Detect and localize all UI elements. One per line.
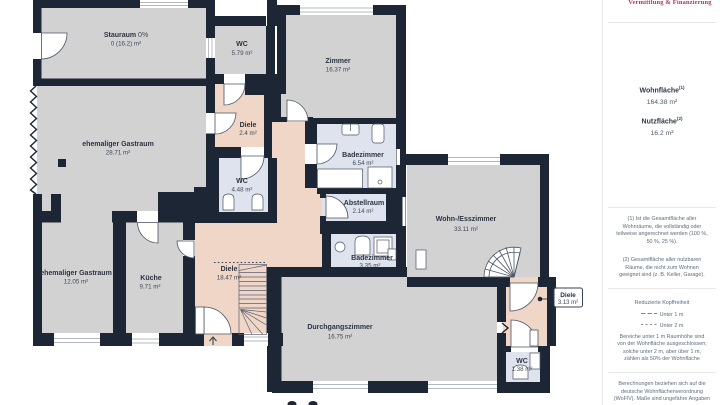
svg-text:9.71 m²: 9.71 m² (140, 284, 161, 291)
svg-text:Diele: Diele (240, 122, 257, 129)
svg-text:0 (16.2) m²: 0 (16.2) m² (111, 41, 141, 48)
svg-text:Wohn-/Esszimmer: Wohn-/Esszimmer (436, 216, 497, 223)
svg-text:12.05 m²: 12.05 m² (64, 279, 88, 286)
svg-text:16.75 m²: 16.75 m² (328, 334, 352, 341)
svg-text:Diele: Diele (560, 292, 576, 299)
svg-text:WC: WC (516, 358, 528, 365)
svg-text:Durchgangszimmer: Durchgangszimmer (307, 324, 373, 331)
svg-text:ehemaliger Gastraum: ehemaliger Gastraum (82, 141, 154, 148)
svg-text:Zimmer: Zimmer (325, 58, 351, 65)
svg-text:2.4 m²: 2.4 m² (239, 130, 257, 137)
svg-text:Küche: Küche (140, 275, 162, 282)
svg-text:5.79 m²: 5.79 m² (232, 50, 253, 57)
svg-text:Badezimmer: Badezimmer (342, 152, 384, 159)
svg-text:4.48 m²: 4.48 m² (232, 187, 253, 194)
svg-text:2.14 m²: 2.14 m² (353, 208, 374, 215)
svg-text:ehemaliger Gastraum: ehemaliger Gastraum (40, 270, 112, 277)
svg-text:6.54 m²: 6.54 m² (353, 160, 374, 167)
svg-text:WC: WC (236, 178, 248, 185)
svg-text:18.47 m²: 18.47 m² (217, 275, 241, 282)
svg-text:Diele: Diele (221, 266, 238, 273)
svg-text:16.37 m²: 16.37 m² (326, 67, 350, 74)
svg-text:3.13 m²: 3.13 m² (558, 300, 578, 306)
svg-text:28.71 m²: 28.71 m² (106, 150, 130, 157)
svg-text:3.35 m²: 3.35 m² (360, 263, 381, 270)
svg-text:Stauraum 0%: Stauraum 0% (104, 32, 148, 39)
svg-text:1.38 m²: 1.38 m² (512, 366, 533, 373)
svg-text:WC: WC (236, 41, 248, 48)
svg-text:Abstellraum: Abstellraum (344, 200, 384, 207)
svg-text:Badezimmer: Badezimmer (351, 255, 393, 262)
svg-text:33.11 m²: 33.11 m² (454, 226, 478, 233)
